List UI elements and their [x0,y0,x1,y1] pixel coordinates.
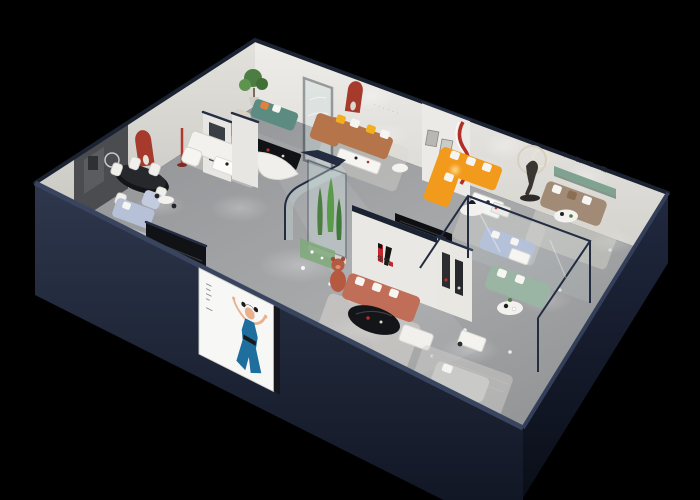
table-plant [569,214,573,218]
art-frame [425,130,438,147]
art-frame [88,156,98,170]
scene-canvas: · · · · · · 华 悦 家 居 [0,0,700,500]
round-coffee-table [554,210,578,223]
side-table [392,164,408,173]
glow-lamp [451,166,459,174]
showroom-render: · · · · · · 华 悦 家 居 [0,0,700,500]
table-plant [508,298,512,302]
display-niche [455,259,463,296]
billboard-edge [274,306,280,395]
niche-column [437,237,472,322]
corridor-partition [232,113,258,188]
chair [458,342,463,347]
teddy-bear-figure [330,257,346,292]
display-niche [442,252,450,289]
